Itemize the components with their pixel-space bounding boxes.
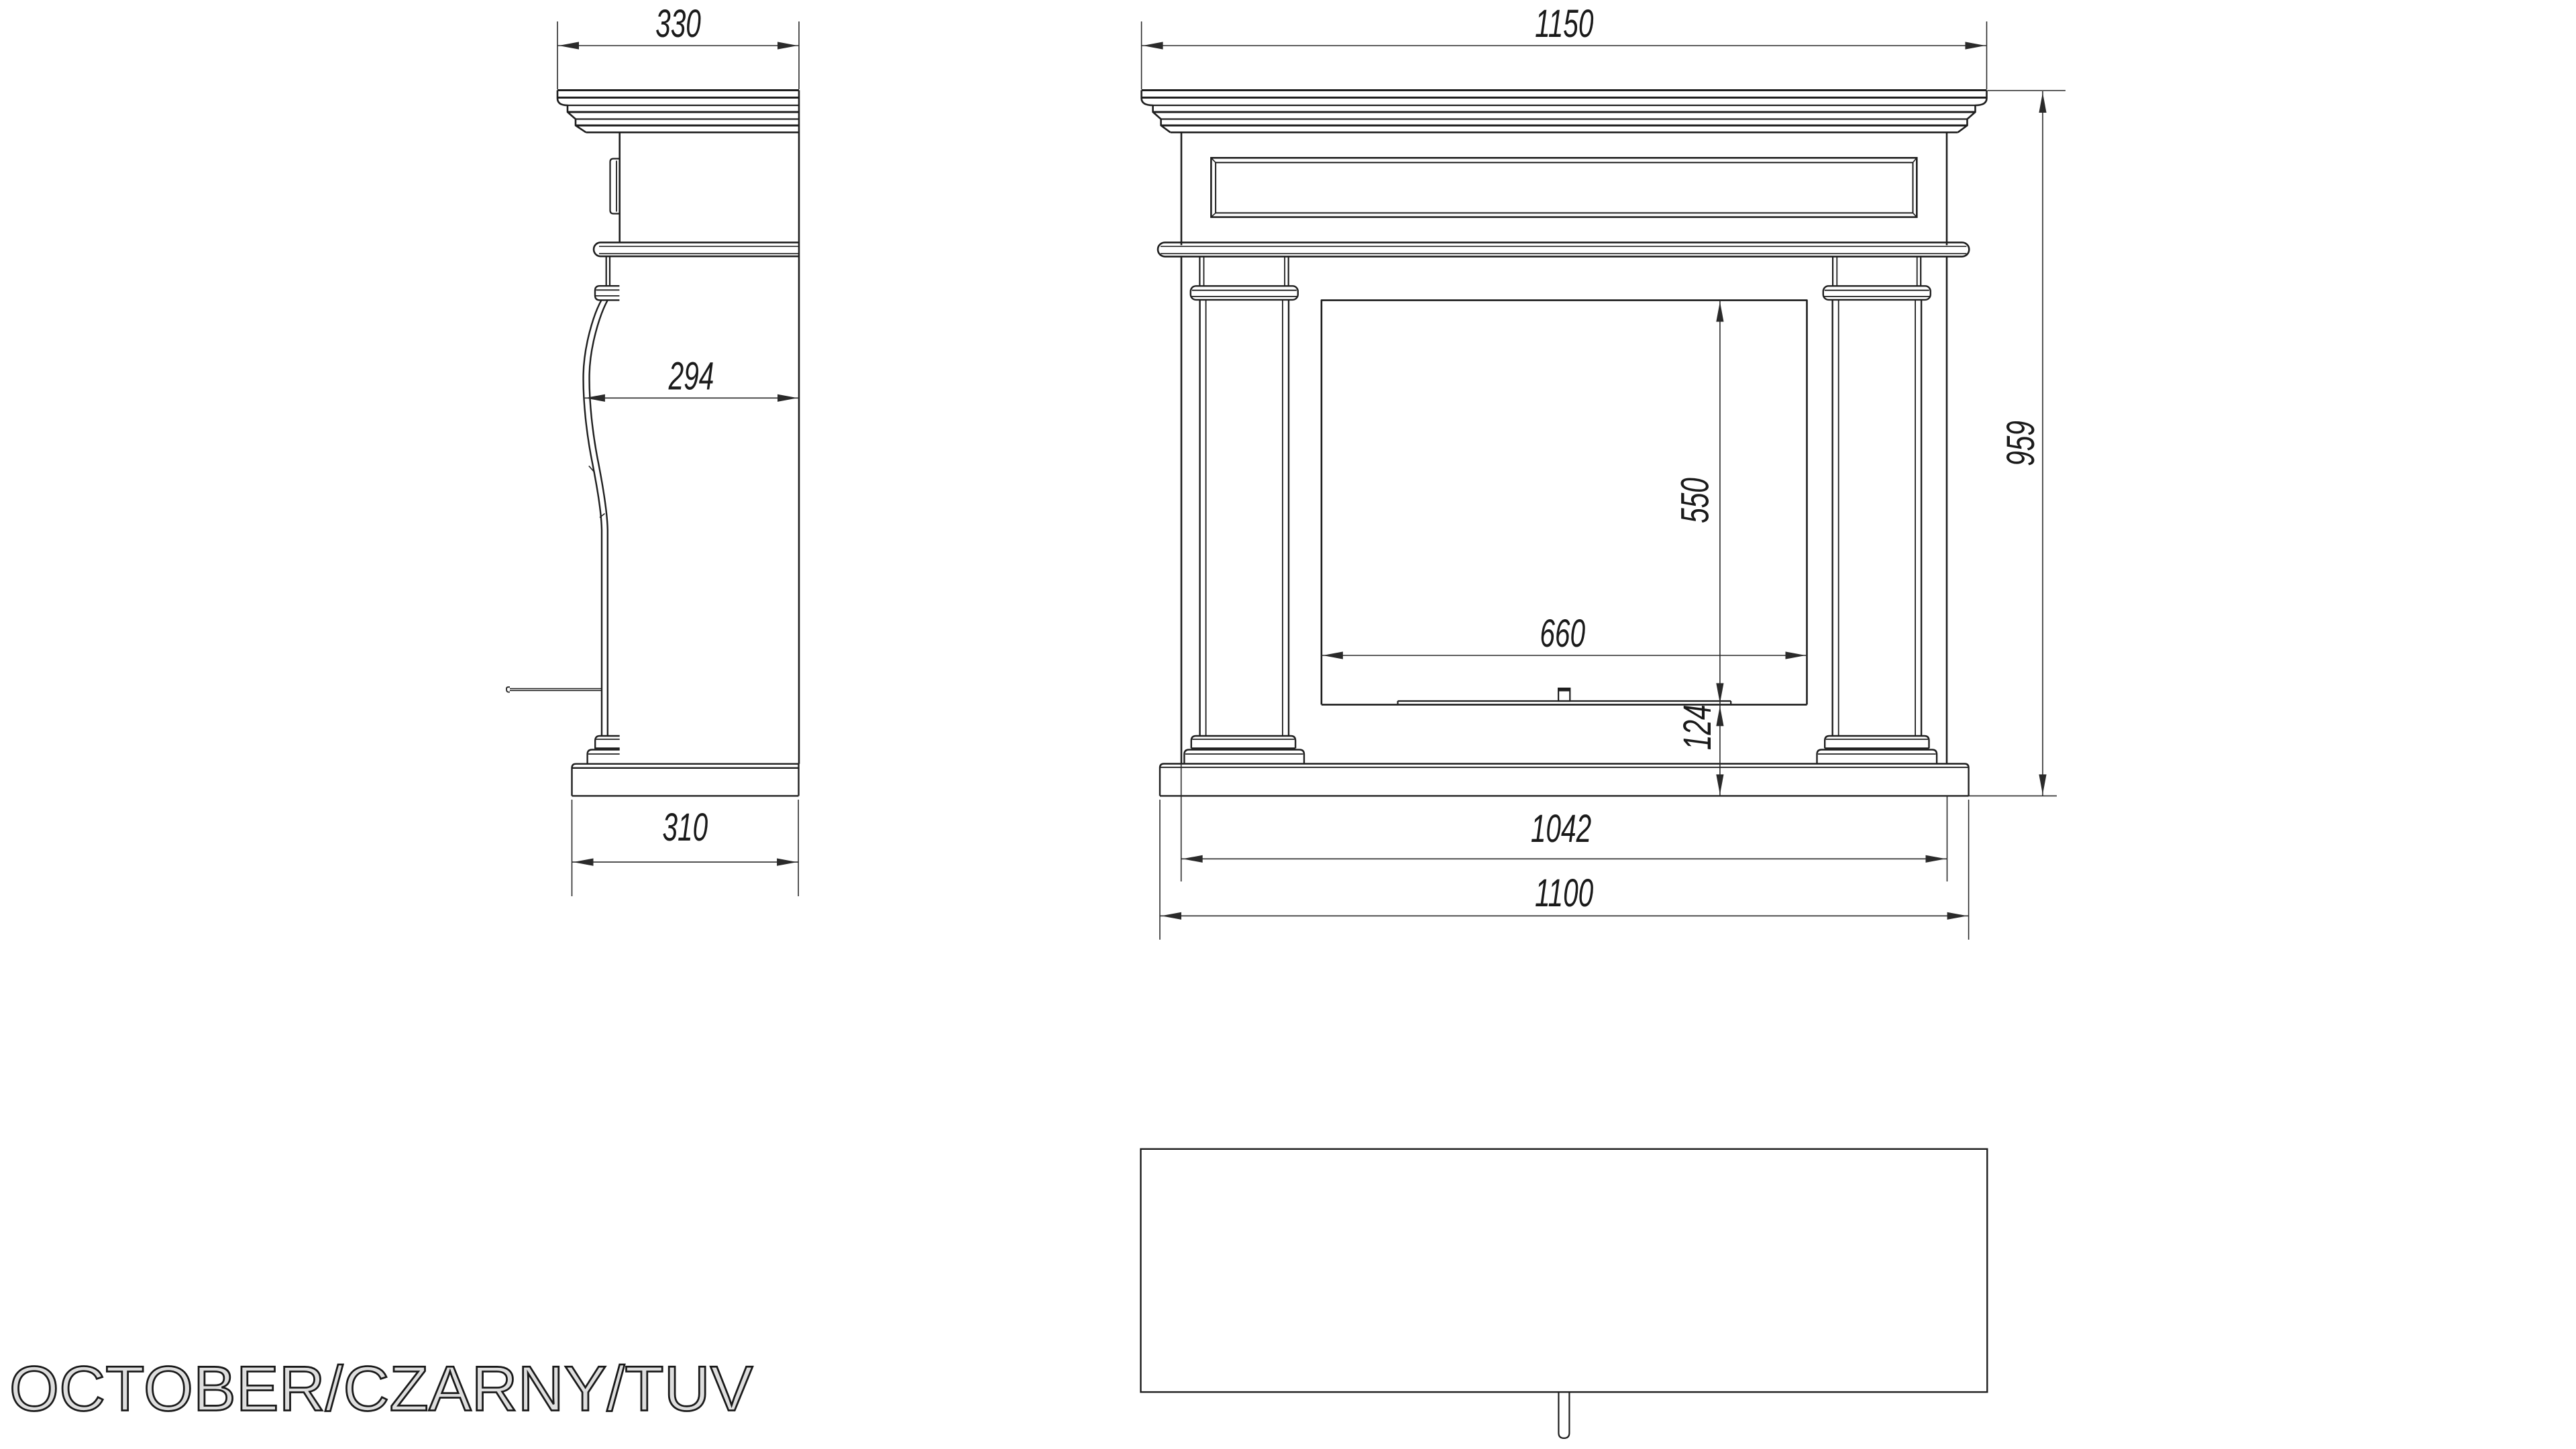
svg-text:1150: 1150: [1535, 2, 1593, 46]
svg-text:330: 330: [655, 2, 701, 46]
svg-text:1042: 1042: [1531, 807, 1591, 851]
svg-text:1100: 1100: [1535, 871, 1593, 915]
svg-text:124: 124: [1676, 704, 1719, 750]
svg-text:294: 294: [668, 354, 714, 398]
svg-text:550: 550: [1673, 478, 1717, 523]
svg-text:310: 310: [662, 806, 708, 849]
svg-text:OCTOBER/CZARNY/TUV: OCTOBER/CZARNY/TUV: [9, 1354, 753, 1425]
svg-text:660: 660: [1540, 612, 1585, 655]
svg-text:959: 959: [1999, 421, 2043, 466]
